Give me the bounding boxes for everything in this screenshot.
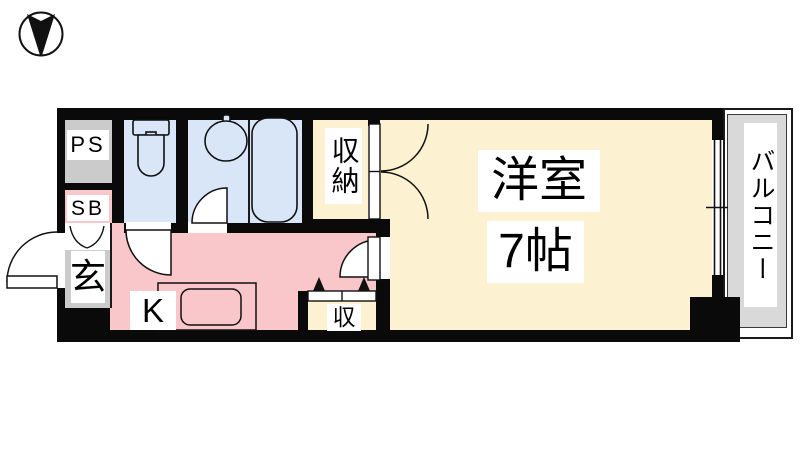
label-balcony: バルコニー: [744, 123, 777, 307]
wall-segment: [690, 297, 740, 342]
wall-segment: [376, 223, 390, 237]
wall-segment: [712, 108, 723, 140]
label-kitchen: K: [130, 291, 176, 330]
label-storage: 収: [327, 304, 361, 331]
wall-segment: [298, 291, 308, 330]
wall-segment: [124, 223, 313, 233]
wall-segment: [712, 275, 723, 298]
floor-plan: PS SB 玄 K 収納 洋室 7帖 収 バルコニー: [0, 0, 800, 450]
bath-partition-line: [248, 120, 250, 223]
label-shoe-box: SB: [67, 195, 109, 221]
label-room-size: 7帖: [487, 221, 584, 283]
entrance-door-area: [65, 223, 110, 250]
wall-segment: [376, 279, 390, 342]
label-room-name: 洋室: [478, 150, 600, 212]
entrance-step-line: [110, 223, 112, 308]
entrance-door-swing: [7, 232, 57, 288]
label-pipe-space: PS: [67, 130, 109, 160]
wall-segment: [57, 108, 65, 233]
wall-segment: [176, 120, 188, 223]
bathroom-area: [188, 120, 302, 223]
wall-segment: [57, 108, 723, 120]
label-entrance: 玄: [71, 251, 105, 303]
wall-segment: [302, 120, 313, 233]
wall-segment: [112, 120, 124, 223]
wall-segment: [65, 183, 112, 190]
north-arrow-icon: [20, 13, 63, 57]
toilet-room-area: [124, 120, 176, 223]
wall-segment: [57, 330, 740, 342]
wall-segment: [65, 308, 110, 342]
wall-segment: [368, 120, 380, 126]
label-closet: 収納: [325, 128, 362, 204]
